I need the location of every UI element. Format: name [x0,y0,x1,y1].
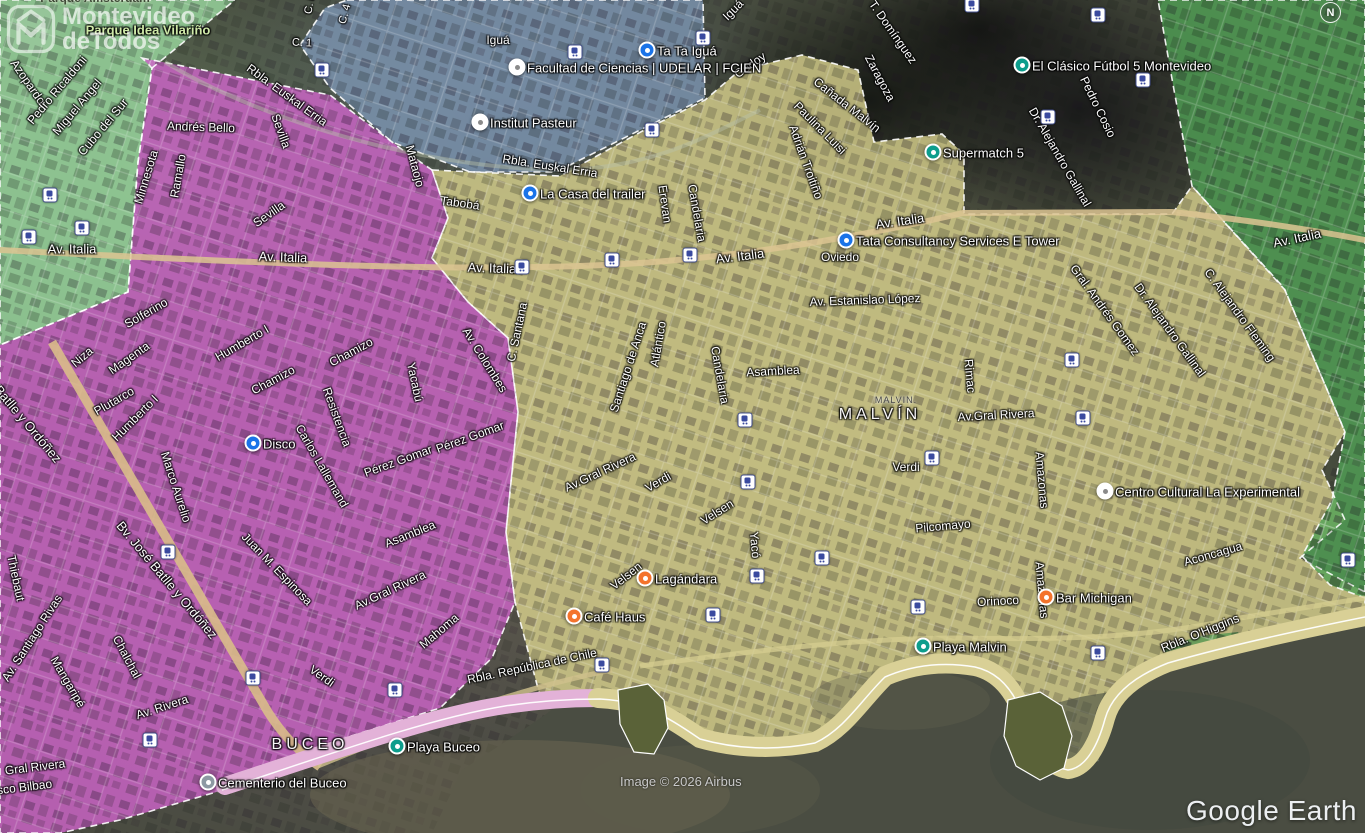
street-label: Av. Italia [48,242,97,257]
bus-stop-icon[interactable] [75,221,90,236]
bus-stop-icon[interactable] [965,0,980,13]
bus-glyph [599,661,605,667]
poi-pin-glyph [528,191,533,196]
bus-glyph [392,686,398,692]
bus-stop-icon[interactable] [595,658,610,673]
bus-stop-icon[interactable] [645,123,660,138]
poi-label: Ta Ta Iguá [657,44,717,59]
bus-glyph [819,554,825,560]
bus-stop-icon[interactable] [1076,411,1091,426]
poi-label: Playa Buceo [407,740,480,755]
bus-stop-icon[interactable] [706,608,721,623]
poi-pin-icon[interactable] [566,608,583,625]
poi-pin-icon[interactable] [838,232,855,249]
map-canvas[interactable]: Parque Idea VilariñoParque AmsterdamAzop… [0,0,1365,833]
poi-label: Institut Pasteur [490,116,577,131]
street-label: C. 1 [292,36,313,49]
bus-stop-icon[interactable] [1041,110,1056,125]
poi-pin-icon[interactable] [1038,589,1055,606]
street-label: Oviedo [821,250,859,264]
street-label: Av. Italia [258,249,307,266]
poi-pin-glyph [572,614,577,619]
bus-stop-icon[interactable] [161,545,176,560]
area-label: BUCEO [272,736,349,754]
poi-pin-icon[interactable] [1014,57,1031,74]
street-label: Iguá [486,33,509,47]
poi-pin-glyph [1020,63,1025,68]
poi-label: Bar Michigan [1056,591,1132,606]
street-label: Yacó [747,531,763,559]
bus-glyph [1095,649,1101,655]
poi-label: La Casa del trailer [540,187,646,202]
poi-pin-icon[interactable] [639,42,656,59]
bus-glyph [47,191,53,197]
poi-label: Centro Cultural La Experimental [1115,485,1300,500]
poi-pin-icon[interactable] [522,185,539,202]
bus-stop-icon[interactable] [605,253,620,268]
bus-stop-icon[interactable] [750,569,765,584]
bus-glyph [929,454,935,460]
poi-label: Disco [263,437,296,452]
bus-glyph [687,251,693,257]
poi-pin-glyph [1044,595,1049,600]
street-label: Andrés Bello [167,119,235,135]
bus-stop-icon[interactable] [683,248,698,263]
poi-pin-icon[interactable] [925,144,942,161]
logo-line2: deTodos [62,29,195,54]
bus-glyph [609,256,615,262]
bus-glyph [710,611,716,617]
bus-stop-icon[interactable] [568,45,583,60]
street-label: Verdi [892,460,919,474]
bus-glyph [250,674,256,680]
street-label: Asamblea [746,363,800,380]
bus-stop-icon[interactable] [1341,553,1356,568]
bus-glyph [1069,356,1075,362]
bus-stop-icon[interactable] [738,413,753,428]
poi-pin-glyph [478,120,483,125]
bus-glyph [915,603,921,609]
bus-glyph [745,478,751,484]
poi-pin-glyph [643,576,648,581]
poi-pin-glyph [251,441,256,446]
poi-pin-icon[interactable] [509,59,526,76]
bus-stop-icon[interactable] [515,260,530,275]
google-earth-logo: Google Earth [1186,795,1357,827]
bus-stop-icon[interactable] [911,600,926,615]
bus-glyph [147,736,153,742]
poi-pin-glyph [1103,489,1108,494]
bus-glyph [649,126,655,132]
poi-pin-glyph [395,744,400,749]
bus-glyph [969,1,975,7]
bus-stop-icon[interactable] [1091,8,1106,23]
poi-label: El Clásico Fútbol 5 Montevideo [1032,59,1211,74]
poi-label: Playa Malvin [933,640,1007,655]
bus-stop-icon[interactable] [925,451,940,466]
bus-glyph [1345,556,1351,562]
poi-label: Lagándara [655,572,717,587]
compass-north-label: N [1327,7,1335,19]
poi-pin-glyph [931,150,936,155]
imagery-attribution: Image © 2026 Airbus [620,774,742,789]
bus-glyph [79,224,85,230]
area-label: MALVÍN [839,406,921,424]
poi-pin-icon[interactable] [245,435,262,452]
poi-label: Facultad de Ciencias | UDELAR | FCIEN [527,61,761,76]
montevideo-logo-icon [6,4,56,59]
bus-glyph [700,34,706,40]
bus-stop-icon[interactable] [246,671,261,686]
poi-pin-icon[interactable] [472,114,489,131]
poi-label: Café Haus [584,610,645,625]
bus-glyph [1095,11,1101,17]
bus-stop-icon[interactable] [1065,353,1080,368]
bus-stop-icon[interactable] [741,475,756,490]
street-label: Orinoco [977,593,1020,609]
poi-pin-icon[interactable] [200,774,217,791]
poi-pin-icon[interactable] [389,738,406,755]
compass-north-button[interactable]: N [1320,2,1341,23]
poi-pin-icon[interactable] [637,570,654,587]
poi-pin-glyph [515,65,520,70]
bus-glyph [742,416,748,422]
bus-glyph [519,263,525,269]
poi-pin-glyph [645,48,650,53]
bus-glyph [754,572,760,578]
montevideo-de-todos-logo: Montevideo deTodos [6,4,195,59]
bus-stop-icon[interactable] [388,683,403,698]
poi-pin-glyph [921,644,926,649]
bus-stop-icon[interactable] [1091,646,1106,661]
bus-stop-icon[interactable] [815,551,830,566]
bus-stop-icon[interactable] [22,230,37,245]
bus-glyph [1140,76,1146,82]
street-label: Rimac [962,358,979,393]
poi-pin-glyph [844,238,849,243]
bus-glyph [1045,113,1051,119]
bus-stop-icon[interactable] [43,188,58,203]
poi-pin-icon[interactable] [1097,483,1114,500]
street-label: Av. Italia [467,260,516,277]
bus-stop-icon[interactable] [1136,73,1151,88]
bus-glyph [1080,414,1086,420]
poi-label: Supermatch 5 [943,146,1024,161]
bus-glyph [26,233,32,239]
bus-stop-icon[interactable] [696,31,711,46]
poi-label: Tata Consultancy Services E Tower [856,234,1060,249]
bus-glyph [165,548,171,554]
bus-stop-icon[interactable] [143,733,158,748]
logo-line1: Montevideo [62,4,195,29]
poi-pin-icon[interactable] [915,638,932,655]
bus-stop-icon[interactable] [315,63,330,78]
poi-label: Cementerio del Buceo [218,776,347,791]
street-label: MALVIN. [875,395,917,405]
poi-pin-glyph [206,780,211,785]
bus-glyph [319,66,325,72]
bus-glyph [572,48,578,54]
